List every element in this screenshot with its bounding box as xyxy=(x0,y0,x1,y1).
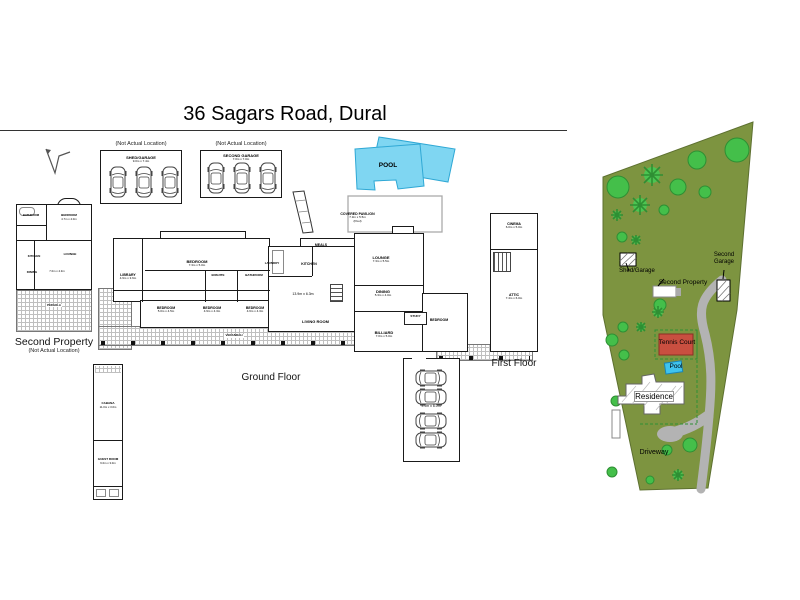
fixture xyxy=(109,489,119,497)
second-garage-note: (Not Actual Location) xyxy=(199,141,283,147)
site-map xyxy=(596,114,796,496)
room-label-verandah: VERANDAH xyxy=(218,334,250,338)
stairs xyxy=(493,252,511,272)
second-property-title: Second Property xyxy=(8,336,100,348)
car-icon xyxy=(258,162,278,194)
attic-label: ATTIC 7.4m x 6.0m xyxy=(492,293,536,301)
map-label-residence: Residence xyxy=(634,391,674,402)
map-label-second-property: Second Property xyxy=(648,279,718,286)
wall xyxy=(113,290,270,291)
car-icon xyxy=(160,166,180,198)
room-label-ensuite: ENSUITE xyxy=(204,274,232,278)
wall xyxy=(34,240,35,290)
room-label-bedroom4: BEDROOM 4.6m x 4.3m xyxy=(235,306,275,314)
pergola-label: PERGOLA xyxy=(36,304,72,307)
second-property-note: (Not Actual Location) xyxy=(8,348,100,354)
driveway-pad xyxy=(657,426,683,442)
room-label-laundry: LAUNDRY xyxy=(262,262,282,266)
sp-lounge-label: LOUNGE xyxy=(52,253,88,257)
wall xyxy=(93,440,123,441)
car-icon xyxy=(108,166,128,198)
cabana-plan xyxy=(93,364,123,500)
room-label-bathroom: BATHROOM xyxy=(240,274,268,278)
garage-door-gap xyxy=(412,356,426,360)
fixture xyxy=(96,489,106,497)
car-icon xyxy=(232,162,252,194)
wall xyxy=(93,486,123,487)
room-dims-living: 13.9m x 6.3m xyxy=(288,292,318,296)
sp-area-dims: 7.0m x 4.3m xyxy=(40,270,74,273)
wall xyxy=(16,240,92,241)
wall xyxy=(237,270,238,302)
wall xyxy=(145,270,270,271)
guest-room-label: GUEST ROOM 6.0m x 3.0m xyxy=(93,458,123,465)
second-garage-label: SECOND GARAGE 7.0m x 7.0m xyxy=(200,153,282,162)
car-icon xyxy=(134,166,154,198)
cabana-hatch xyxy=(95,366,121,373)
car-icon xyxy=(415,411,447,431)
title-divider xyxy=(0,130,567,131)
wall xyxy=(46,204,47,240)
wall xyxy=(312,246,313,276)
cinema-label: CINEMA 6.0m x 5.0m xyxy=(492,222,536,230)
wall xyxy=(490,249,538,250)
room-label-pavilion: COVERED PAVILION 7.3m x 5.5m (Pool) xyxy=(330,212,385,224)
pool-label: POOL xyxy=(368,162,408,170)
room-label-living: LIVING ROOM xyxy=(293,319,338,324)
room-label-dining: DINING 5.3m x 4.0m xyxy=(363,289,403,298)
room-label-bedroom5: BEDROOM xyxy=(423,318,455,322)
map-label-pool: Pool xyxy=(664,363,688,370)
stairs xyxy=(330,284,343,302)
room-label-bedroom3: BEDROOM 4.9m x 4.3m xyxy=(192,306,232,314)
map-label-second-garage: Second Garage xyxy=(705,252,743,266)
room-label-bedroom2: BEDROOM 5.0m x 4.5m xyxy=(146,306,186,314)
room-label-billiard: BILLIARD 7.0m x 5.0m xyxy=(364,330,404,339)
wall xyxy=(354,285,424,286)
room-label-meals: MEALS xyxy=(306,243,336,247)
first-floor-plan xyxy=(490,213,538,352)
cabana-label: CABANA 11.0m x 3.0m xyxy=(93,402,123,409)
shed-garage-label: SHED/GARAGE 9.0m x 7.4m xyxy=(100,155,182,164)
page-title: 36 Sagars Road, Dural xyxy=(130,103,440,126)
room-label-lounge: LOUNGE 7.3m x 5.5m xyxy=(361,255,401,264)
room-label-library: LIBRARY 4.9m x 3.6m xyxy=(114,273,142,281)
map-label-tennis-court: Tennis Court xyxy=(658,339,696,346)
car-icon xyxy=(415,387,447,407)
block-bedroom-right xyxy=(422,293,468,352)
first-floor-label: First Floor xyxy=(484,358,544,369)
wall xyxy=(268,276,312,277)
map-label-driveway: Driveway xyxy=(633,449,675,457)
sp-bathroom-label: BATHROOM xyxy=(17,214,45,217)
ground-floor-label: Ground Floor xyxy=(216,372,326,383)
car-icon xyxy=(415,430,447,450)
car-icon xyxy=(415,368,447,388)
room-label-kitchen: KITCHEN xyxy=(295,262,323,266)
block-lounge-dining xyxy=(354,233,424,313)
wall xyxy=(142,238,143,302)
pergola-hatch xyxy=(16,290,92,332)
sp-bedroom-label: BEDROOM 4.7m x 4.0m xyxy=(48,214,90,221)
floorplan-page: 36 Sagars Road, Dural (Not Actual Locati… xyxy=(0,0,800,600)
sp-kitchen-label: KITCHEN xyxy=(21,255,47,258)
room-label-bedroom1: BEDROOM 7.3m x 5.0m xyxy=(167,259,227,268)
wall xyxy=(16,225,46,226)
map-label-shed-garage: Shed/Garage xyxy=(607,268,667,275)
shed-garage-note: (Not Actual Location) xyxy=(99,141,183,147)
room-label-study: STUDY xyxy=(405,315,426,319)
car-icon xyxy=(206,162,226,194)
compass-icon xyxy=(42,146,72,176)
